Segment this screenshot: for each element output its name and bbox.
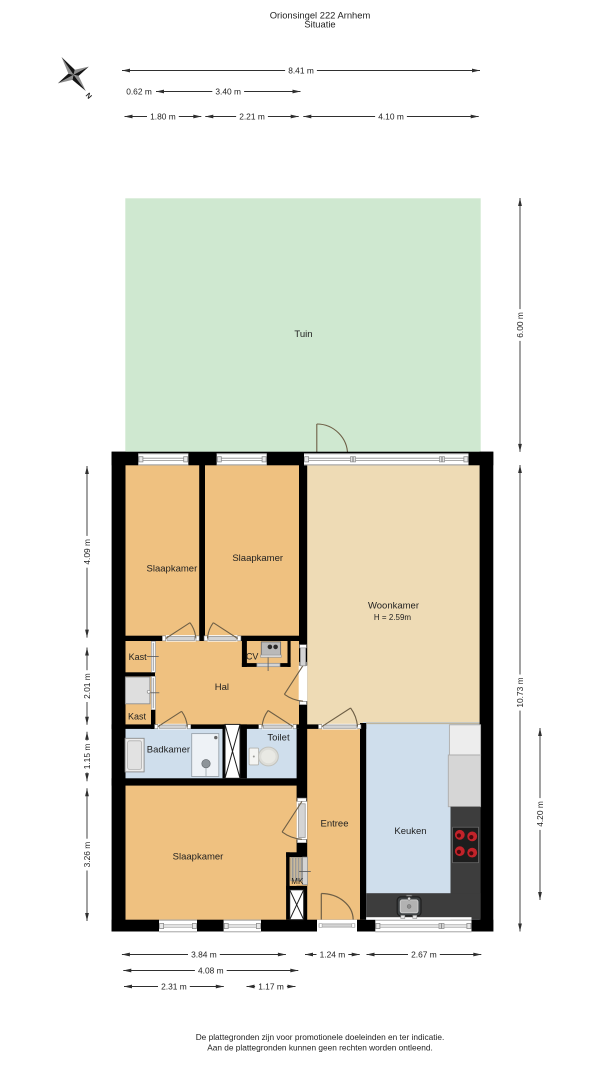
svg-text:Aan de plattegronden kunnen ge: Aan de plattegronden kunnen geen rechten… xyxy=(207,1043,433,1053)
svg-text:Situatie: Situatie xyxy=(304,19,335,30)
svg-text:3.26 m: 3.26 m xyxy=(82,842,92,868)
svg-text:2.01 m: 2.01 m xyxy=(82,673,92,699)
svg-text:1.24 m: 1.24 m xyxy=(320,949,346,959)
svg-text:Slaapkamer: Slaapkamer xyxy=(173,852,224,863)
svg-text:6.00 m: 6.00 m xyxy=(515,312,525,338)
svg-text:H = 2.59m: H = 2.59m xyxy=(374,613,411,622)
svg-text:2.67 m: 2.67 m xyxy=(411,949,437,959)
svg-text:1.15 m: 1.15 m xyxy=(82,744,92,770)
svg-text:De plattegronden zijn voor pro: De plattegronden zijn voor promotionele … xyxy=(196,1032,445,1042)
svg-text:2.21 m: 2.21 m xyxy=(239,111,265,121)
svg-text:8.41 m: 8.41 m xyxy=(288,65,314,75)
svg-text:Tuin: Tuin xyxy=(294,329,312,340)
svg-text:Kast: Kast xyxy=(129,652,148,662)
svg-text:Kast: Kast xyxy=(128,712,147,722)
svg-text:4.10 m: 4.10 m xyxy=(378,111,404,121)
svg-text:3.84 m: 3.84 m xyxy=(191,949,217,959)
svg-text:Slaapkamer: Slaapkamer xyxy=(232,553,283,564)
svg-text:Badkamer: Badkamer xyxy=(147,745,190,756)
svg-text:10.73 m: 10.73 m xyxy=(515,677,525,707)
svg-text:4.09 m: 4.09 m xyxy=(82,539,92,565)
svg-text:3.40 m: 3.40 m xyxy=(215,86,241,96)
svg-text:4.20 m: 4.20 m xyxy=(535,801,545,827)
svg-text:4.08 m: 4.08 m xyxy=(198,965,224,975)
svg-text:CV: CV xyxy=(246,652,259,662)
svg-text:Slaapkamer: Slaapkamer xyxy=(147,564,198,575)
svg-text:Entree: Entree xyxy=(321,819,349,830)
svg-text:1.80 m: 1.80 m xyxy=(150,111,176,121)
svg-text:1.17 m: 1.17 m xyxy=(258,981,284,991)
svg-text:Toilet: Toilet xyxy=(267,733,290,744)
svg-text:Keuken: Keuken xyxy=(394,826,426,837)
svg-text:MK: MK xyxy=(291,877,304,886)
svg-text:Hal: Hal xyxy=(215,682,229,693)
svg-text:0.62 m: 0.62 m xyxy=(126,86,152,96)
svg-text:2.31 m: 2.31 m xyxy=(161,981,187,991)
svg-text:Woonkamer: Woonkamer xyxy=(368,601,419,612)
